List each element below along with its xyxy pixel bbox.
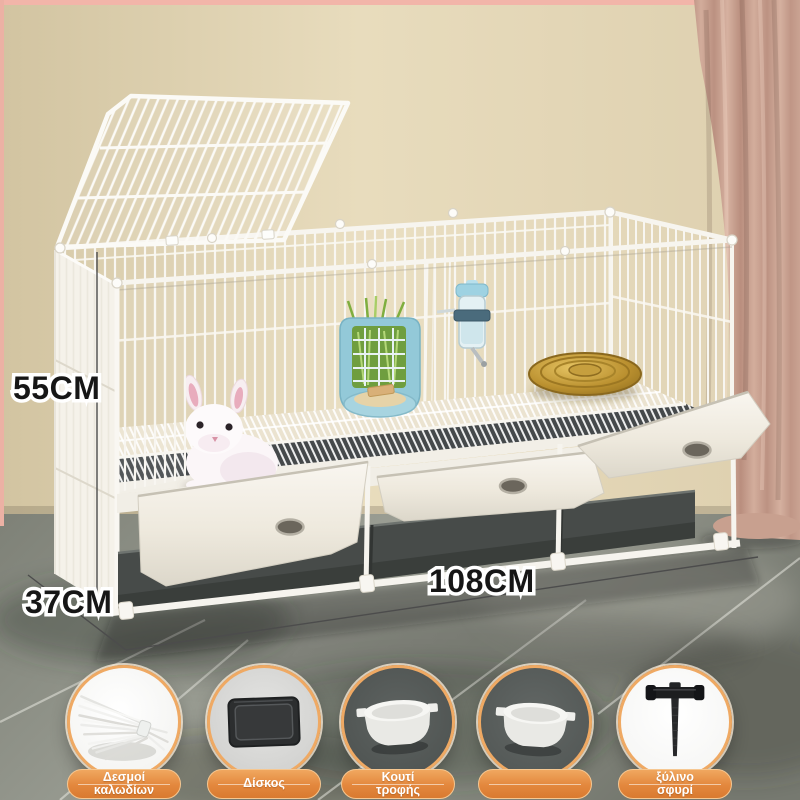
accessory-wooden-hammer: ξύλινο σφυρί [618, 665, 732, 800]
hammer-icon [618, 665, 732, 779]
accessory-feeder-bowl [478, 665, 592, 800]
top-pink-strip [0, 0, 800, 5]
accessory-tray: Δίσκος [207, 665, 321, 800]
woven-basket [529, 353, 641, 401]
accessory-label-food-box: Κουτί τροφής [341, 769, 455, 799]
feeder-bowl-icon [341, 665, 455, 779]
accessory-strip: Δεσμοί καλωδίων Δίσκος [0, 665, 800, 800]
cage-left-panel [55, 250, 117, 612]
accessory-food-box: Κουτί τροφής [341, 665, 455, 800]
product-photo: 55CM 37CM 108CM [0, 0, 800, 800]
accessory-label-feeder-bowl [478, 769, 592, 799]
feeder-bowl-icon [478, 665, 592, 779]
accessory-label-cable-ties: Δεσμοί καλωδίων [67, 769, 181, 799]
cable-ties-icon [67, 665, 181, 779]
accessory-label-wooden-hammer: ξύλινο σφυρί [618, 769, 732, 799]
depth-dimension-label: 37CM [25, 584, 112, 620]
left-pink-strip [0, 0, 4, 526]
width-dimension-label: 108CM [429, 563, 535, 599]
height-dimension-label: 55CM [13, 370, 100, 406]
accessory-cable-ties: Δεσμοί καλωδίων [67, 665, 181, 800]
accessory-label-tray: Δίσκος [207, 769, 321, 799]
tray-icon [207, 665, 321, 779]
